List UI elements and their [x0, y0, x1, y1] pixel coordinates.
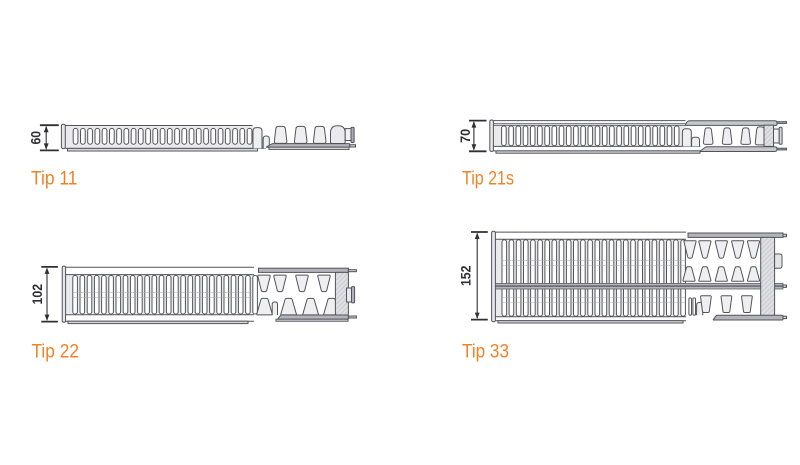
svg-text:Tip 33: Tip 33	[462, 340, 509, 362]
svg-text:Tip 22: Tip 22	[32, 340, 80, 362]
svg-text:70: 70	[458, 129, 474, 143]
svg-text:102: 102	[30, 284, 46, 305]
svg-text:Tip 21s: Tip 21s	[462, 168, 514, 190]
svg-text:152: 152	[459, 265, 475, 286]
svg-text:60: 60	[28, 131, 44, 145]
svg-text:Tip 11: Tip 11	[31, 168, 78, 190]
